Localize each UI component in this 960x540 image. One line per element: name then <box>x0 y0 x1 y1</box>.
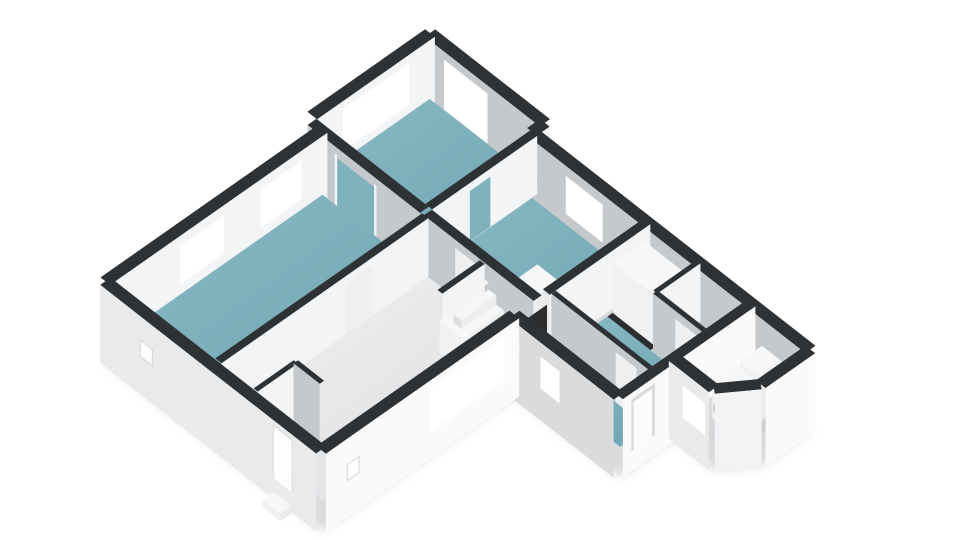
main-se-wall-window-mullion <box>478 356 480 396</box>
floorplan-viewport <box>0 0 960 540</box>
main-se-wall-window-mullion <box>455 372 457 412</box>
kitchen-middle-wall-passage-jamb <box>467 188 470 243</box>
wing-chamfer-wall-face <box>715 389 762 471</box>
kitchen-middle-wall-passage-jamb <box>490 172 493 227</box>
kitchen-living-wall-passage-jamb <box>335 153 338 206</box>
floorplan-3d-canvas <box>0 0 960 540</box>
kitchen-living-wall-passage-jamb <box>374 184 376 237</box>
kitchen-nw-wall-window-mullion <box>375 88 377 126</box>
